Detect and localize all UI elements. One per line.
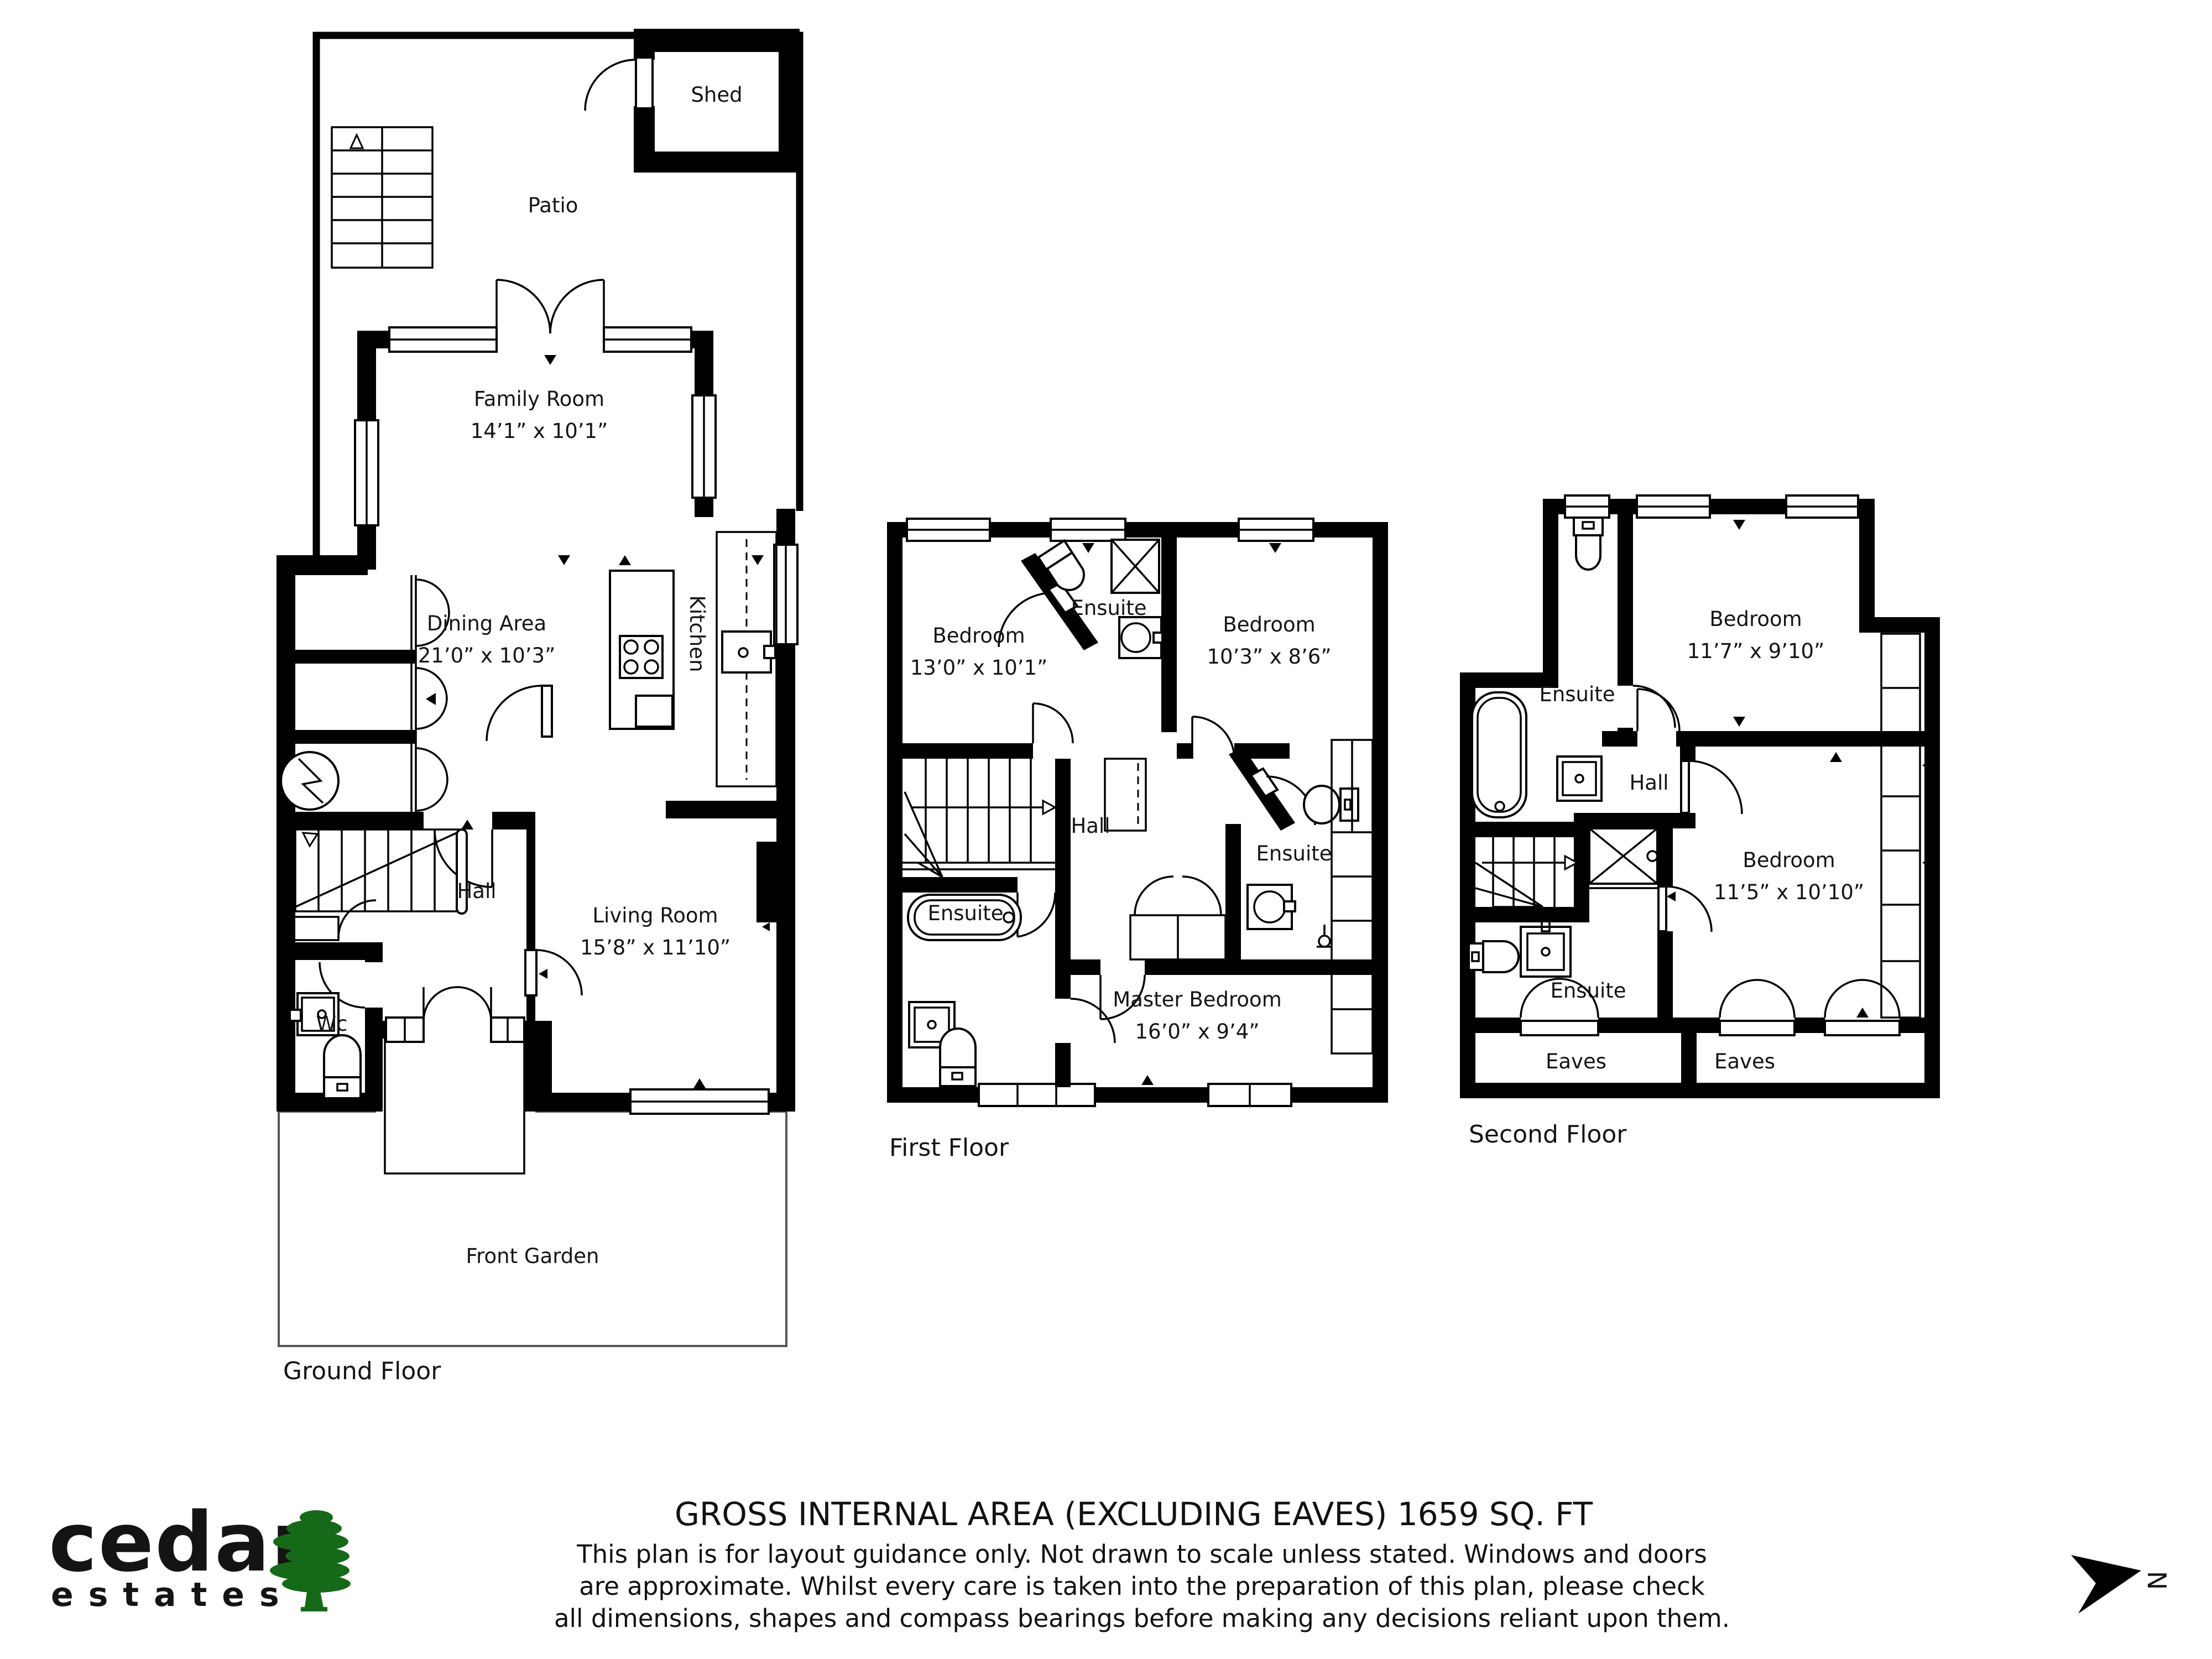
sf-eaves2-label: Eaves [1714, 1050, 1775, 1073]
kitchen-island [610, 571, 674, 729]
open-plan-marker [752, 555, 764, 565]
disclaimer-line-3: all dimensions, shapes and compass beari… [554, 1604, 1730, 1633]
eaves-doors-2 [1720, 980, 1794, 1035]
wc-label: Wc [316, 1012, 348, 1036]
first-floor-title: First Floor [889, 1134, 1009, 1162]
second-bedroom1-south-wall [1602, 689, 1924, 762]
porch-window-left [386, 1018, 424, 1042]
compass: N [2071, 1555, 2172, 1614]
chimney-breast [757, 842, 776, 922]
eaves-wall [1468, 979, 1924, 1083]
shower-icon [1112, 540, 1159, 593]
door-leaf [1681, 761, 1689, 813]
patio-label: Patio [528, 194, 578, 217]
shed-label: Shed [691, 83, 742, 107]
master-wardrobes [1332, 740, 1373, 1053]
hall-closet [1105, 759, 1146, 831]
second-toilet-column [1574, 499, 1675, 747]
french-doors [497, 280, 604, 365]
sink-icon [1248, 885, 1295, 929]
dining-closets [281, 575, 449, 812]
north-arrow-icon [2071, 1555, 2141, 1614]
sink-icon [1521, 918, 1571, 977]
ff-master-label: Master Bedroom [1113, 988, 1281, 1011]
second-ensuite-top [1472, 692, 1601, 817]
logo-sub-text: estates [51, 1575, 294, 1614]
dining-hall-wall [295, 812, 535, 887]
boiler-icon [281, 752, 338, 810]
family-window-side-left [355, 420, 378, 525]
hall-cupboards [1130, 877, 1225, 959]
ff-ensuite-left-label: Ensuite [927, 901, 1003, 925]
eaves-doors-3 [1825, 980, 1900, 1035]
patio-stairs [332, 127, 432, 268]
bedroom1-wall [902, 703, 1073, 759]
family-window-right [604, 327, 691, 352]
sink-icon [1557, 757, 1601, 801]
ground-floor-plan: Shed Patio Family Room 14’1” x 10’1” Din… [276, 29, 800, 1385]
second-floor-title: Second Floor [1469, 1120, 1627, 1149]
ff-bedroom1-dims: 13’0” x 10’1” [910, 656, 1048, 680]
kitchen-window [774, 545, 797, 644]
dining-dims: 21’0” x 10’3” [418, 644, 556, 667]
stairs-up-arrow [303, 833, 317, 846]
first-floor-plan: Bedroom 13’0” x 10’1” Ensuite Bedroom 10… [887, 519, 1388, 1162]
disclaimer-line-2: are approximate. Whilst every care is ta… [579, 1572, 1705, 1601]
living-label: Living Room [592, 904, 718, 927]
gross-area-title: GROSS INTERNAL AREA (EXCLUDING EAVES) 16… [675, 1495, 1593, 1533]
toilet-icon [1469, 941, 1519, 972]
sf-eaves1-label: Eaves [1546, 1050, 1606, 1073]
toilet-icon [940, 1029, 975, 1086]
kitchen-counter [717, 532, 776, 786]
sf-bedroom2-dims: 11’5” x 10’10” [1714, 880, 1864, 904]
dining-cupboard-door [487, 686, 552, 741]
living-room-window [630, 1089, 769, 1114]
family-window-side-right [692, 395, 716, 498]
ff-ensuite-top-label: Ensuite [1071, 596, 1146, 620]
ff-bedroom2-dims: 10’3” x 8’6” [1207, 645, 1332, 669]
wc-toilet-icon [324, 1035, 361, 1098]
second-wardrobes [1881, 634, 1930, 1018]
hob-icon [620, 636, 662, 678]
second-outer-walls [1468, 507, 1932, 1091]
second-floor-plan: Ensuite Bedroom 11’7” x 9’10” Hall Bedro… [1468, 495, 1932, 1149]
kitchen-label: Kitchen [685, 595, 709, 672]
disclaimer-line-1: This plan is for layout guidance only. N… [576, 1540, 1707, 1569]
patio-boundary-wall [316, 35, 800, 557]
footer: GROSS INTERNAL AREA (EXCLUDING EAVES) 16… [554, 1495, 1730, 1633]
bath-icon [1472, 692, 1526, 817]
porch-window-right [491, 1018, 524, 1042]
toilet-icon [1574, 518, 1603, 570]
family-window-left [389, 327, 497, 352]
floorplan-canvas: Shed Patio Family Room 14’1” x 10’1” Din… [0, 0, 2212, 1659]
sf-bedroom2-label: Bedroom [1743, 848, 1835, 872]
sf-bedroom1-label: Bedroom [1709, 607, 1802, 631]
bedroom2-west-wall [1161, 538, 1177, 732]
ground-hall-label: Hall [457, 879, 496, 903]
family-room-dims: 14’1” x 10’1” [471, 419, 608, 443]
front-garden-label: Front Garden [466, 1244, 599, 1268]
cedar-estates-logo: cedar estates [49, 1495, 351, 1614]
stairs-up-arrow [351, 135, 363, 148]
hall-stairs [285, 830, 467, 940]
living-dims: 15’8” x 11’10” [580, 936, 731, 959]
front-door [424, 987, 491, 1021]
door-leaf [1658, 886, 1666, 931]
eaves-divider-wall [1681, 1033, 1697, 1083]
open-plan-marker [558, 555, 570, 565]
ground-floor-title: Ground Floor [283, 1357, 441, 1385]
living-door-leaf [525, 950, 536, 995]
ensuite-right [1225, 786, 1358, 959]
living-top-wall [666, 801, 776, 818]
ff-bedroom1-label: Bedroom [932, 624, 1025, 648]
ff-hall-label: Hall [1071, 814, 1110, 838]
open-plan-marker [619, 555, 631, 565]
family-room-label: Family Room [474, 387, 604, 411]
shed-door-leaf [636, 58, 653, 108]
porch [376, 1029, 535, 1173]
sf-ensuite-bottom-label: Ensuite [1550, 979, 1626, 1003]
first-top-windows [907, 519, 1313, 553]
shower-head-icon [1317, 925, 1332, 947]
sf-hall-label: Hall [1629, 771, 1668, 795]
dining-label: Dining Area [427, 612, 546, 635]
bedroom2-south-wall [1177, 717, 1315, 831]
sf-ensuite-top-label: Ensuite [1539, 682, 1615, 706]
ff-master-dims: 16’0” x 9’4” [1135, 1020, 1260, 1044]
sf-bedroom1-dims: 11’7” x 9’10” [1687, 639, 1825, 663]
first-stairs [902, 759, 1071, 877]
ff-ensuite-right-label: Ensuite [1256, 842, 1332, 865]
kitchen-sink-icon [722, 632, 775, 672]
sink-icon [1119, 617, 1165, 658]
shed-door-arc [585, 60, 636, 111]
north-label: N [2142, 1571, 2172, 1590]
second-ensuite-bottom [1468, 907, 1589, 977]
ff-bedroom2-label: Bedroom [1223, 613, 1315, 637]
